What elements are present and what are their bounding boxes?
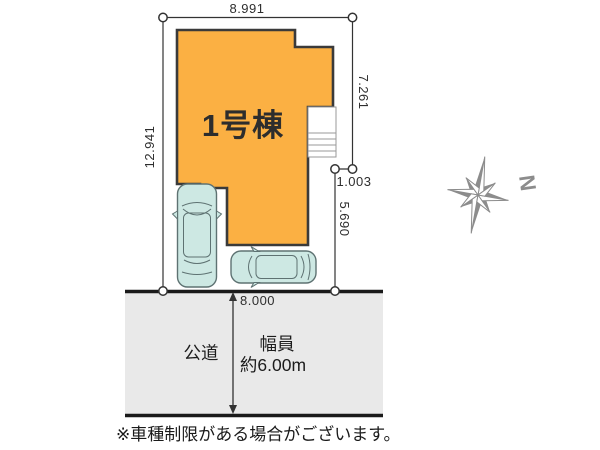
car-mirror-left-icon bbox=[173, 211, 178, 219]
dimension-right-upper: 7.261 bbox=[356, 74, 371, 109]
car-mirror-right-icon bbox=[217, 211, 222, 219]
road-name-label: 公道 bbox=[184, 343, 219, 363]
dimension-jog: 1.003 bbox=[336, 174, 371, 189]
porch-outline bbox=[308, 107, 336, 157]
building-label: 1号棟 bbox=[202, 108, 284, 143]
lot-corner-marker bbox=[348, 13, 356, 21]
car-top-view-horizontal bbox=[231, 247, 316, 288]
site-plan-canvas: 公道 幅員 約6.00m 1号棟 bbox=[0, 0, 600, 450]
dimension-bottom: 8.000 bbox=[240, 293, 275, 308]
lot-corner-marker bbox=[159, 287, 167, 295]
dimension-left: 12.941 bbox=[142, 126, 157, 169]
lot-corner-marker bbox=[331, 287, 339, 295]
road-width-label-line1: 幅員 bbox=[260, 334, 295, 354]
road-area: 公道 幅員 約6.00m bbox=[125, 291, 383, 417]
entrance-steps bbox=[308, 107, 336, 157]
dimension-top: 8.991 bbox=[229, 1, 264, 16]
lot-corner-marker bbox=[159, 13, 167, 21]
lot-corner-marker bbox=[348, 165, 356, 173]
lot-corner-marker bbox=[331, 165, 339, 173]
dimension-right-lower: 5.690 bbox=[337, 201, 352, 236]
compass-north-label: N bbox=[514, 173, 541, 192]
road-width-label-line2: 約6.00m bbox=[240, 355, 306, 375]
car-restriction-note: ※車種制限がある場合がございます。 bbox=[116, 424, 401, 444]
compass-light-facets bbox=[441, 151, 516, 239]
compass-rose: N bbox=[441, 151, 541, 239]
site-plan-page: 公道 幅員 約6.00m 1号棟 bbox=[0, 0, 600, 450]
road-surface bbox=[125, 291, 383, 417]
car-top-view-vertical bbox=[173, 184, 222, 287]
